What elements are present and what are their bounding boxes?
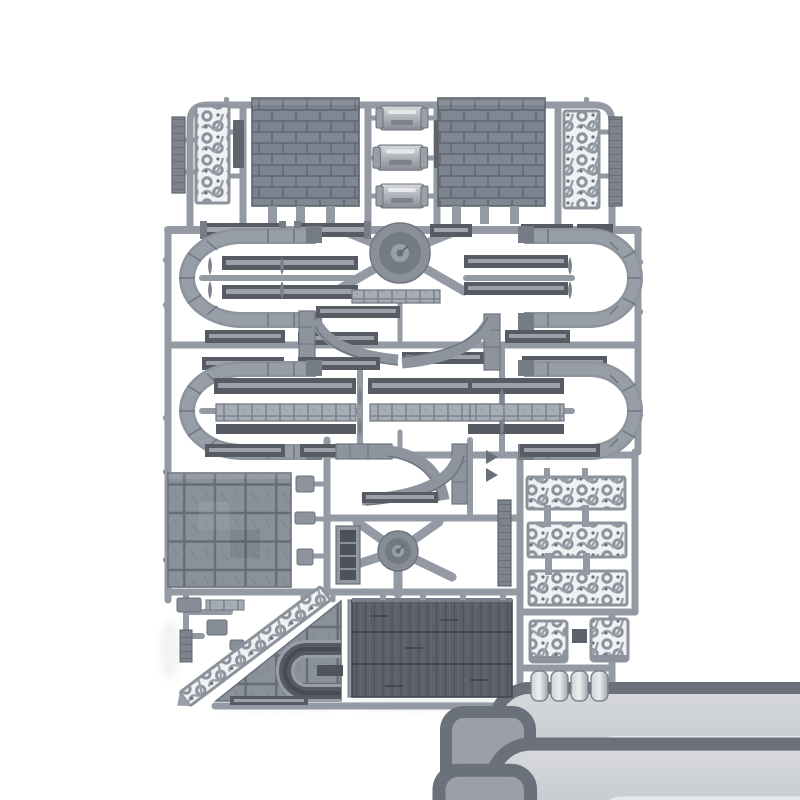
- brick-wall-panel-1: [252, 98, 359, 224]
- brick-wall-panel-2: [438, 98, 545, 224]
- round-platform-disc-2: [378, 531, 418, 571]
- ornate-corner-bracket-2: [591, 619, 628, 661]
- ornate-corner-bracket-1: [530, 621, 567, 662]
- product-photo: [0, 0, 800, 800]
- narrow-textured-strip-right: [609, 117, 622, 206]
- ornate-railing-horizontal-1: [527, 477, 625, 509]
- narrow-textured-strip-left: [172, 117, 185, 193]
- ornate-railing-horizontal-3: [529, 571, 627, 605]
- narrow-textured-strip-bottom: [498, 500, 511, 586]
- cobble-bar-below-disc: [352, 290, 440, 303]
- ornate-railing-vertical-right: [564, 111, 599, 208]
- round-platform-disc-1: [370, 223, 430, 283]
- tile-floor-panel: [168, 473, 291, 587]
- wall-bars-row3-middle: [214, 378, 564, 434]
- plank-deck-panel: [348, 590, 512, 697]
- ladder-strip: [336, 526, 360, 584]
- column-drums-top: [373, 106, 428, 208]
- bracket-connector-block: [572, 629, 587, 643]
- sprue-photo: [0, 0, 800, 800]
- ornate-railing-horizontal-2: [528, 523, 626, 557]
- ornate-railing-vertical-left: [196, 106, 229, 203]
- small-fittings-mid: [295, 476, 315, 565]
- column-drums-bottom: [439, 688, 800, 800]
